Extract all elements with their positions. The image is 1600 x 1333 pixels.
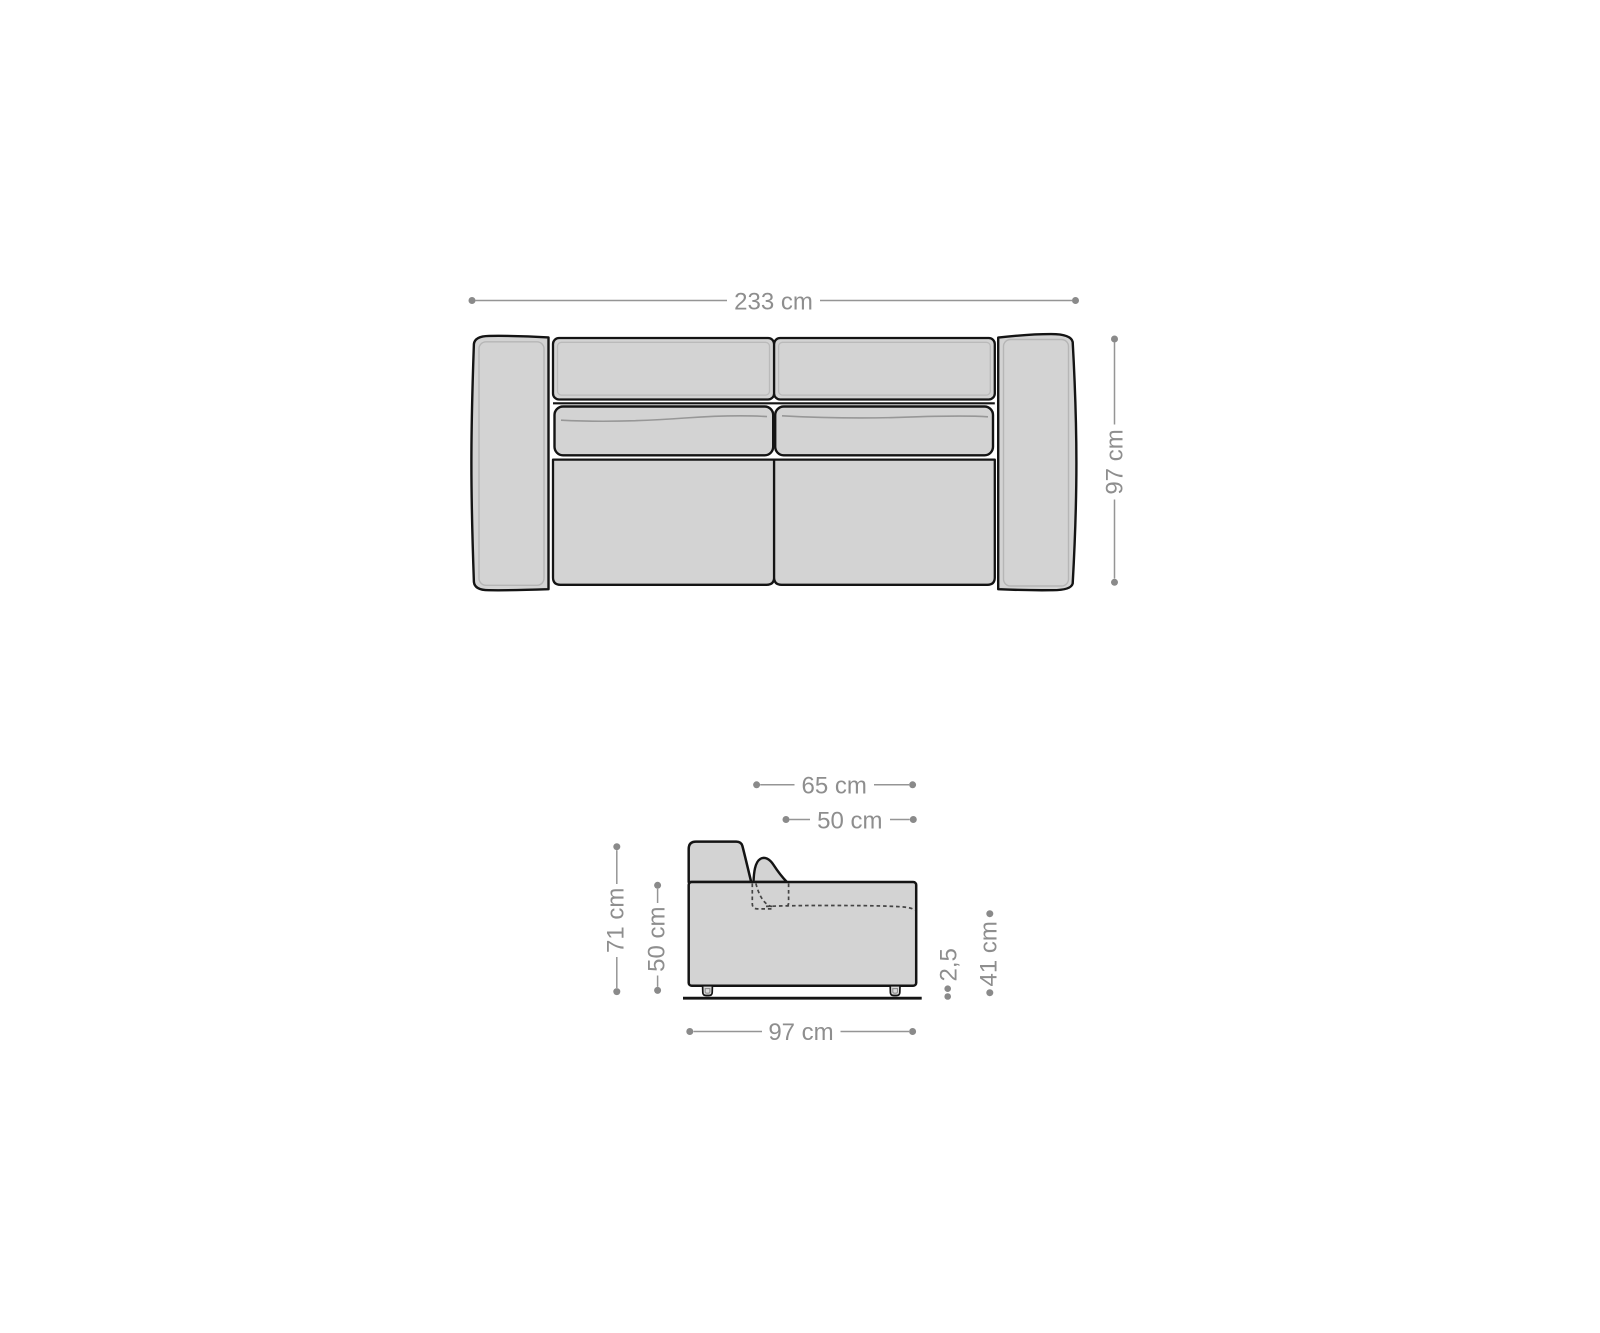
svg-text:50 cm: 50 cm bbox=[644, 907, 671, 972]
svg-text:41 cm: 41 cm bbox=[976, 921, 1003, 986]
svg-text:50 cm: 50 cm bbox=[817, 807, 882, 834]
svg-text:2,5: 2,5 bbox=[936, 948, 963, 981]
svg-text:97 cm: 97 cm bbox=[768, 1019, 833, 1046]
svg-text:65 cm: 65 cm bbox=[802, 773, 867, 800]
svg-text:97 cm: 97 cm bbox=[1102, 429, 1129, 494]
svg-text:71 cm: 71 cm bbox=[603, 888, 630, 953]
svg-text:233 cm: 233 cm bbox=[734, 289, 813, 316]
